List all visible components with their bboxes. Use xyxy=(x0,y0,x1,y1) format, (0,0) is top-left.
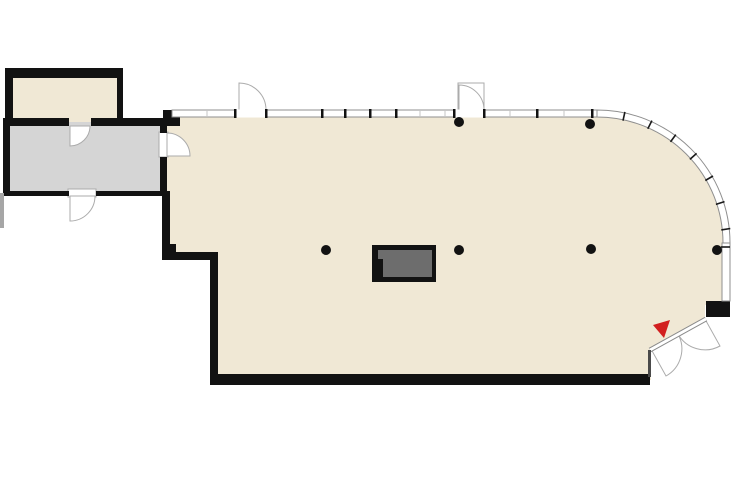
column-dot-6 xyxy=(712,245,722,255)
room-upper-left-floor xyxy=(9,74,121,122)
column-dot-1 xyxy=(454,117,464,127)
floor-plan-canvas xyxy=(0,0,732,486)
fixture-top xyxy=(378,250,432,277)
window-wall-right xyxy=(722,243,730,301)
door-exterior-top-right xyxy=(458,83,484,110)
central-fixture xyxy=(372,245,436,282)
column-dot-3 xyxy=(321,245,331,255)
column-dot-5 xyxy=(586,244,596,254)
main-hall-floor xyxy=(165,112,726,380)
door-opening-top-right xyxy=(455,110,485,118)
column-dot-4 xyxy=(454,245,464,255)
column-dot-2 xyxy=(585,119,595,129)
edge-wall-stub xyxy=(0,193,4,228)
door-opening-top-left xyxy=(236,110,266,118)
